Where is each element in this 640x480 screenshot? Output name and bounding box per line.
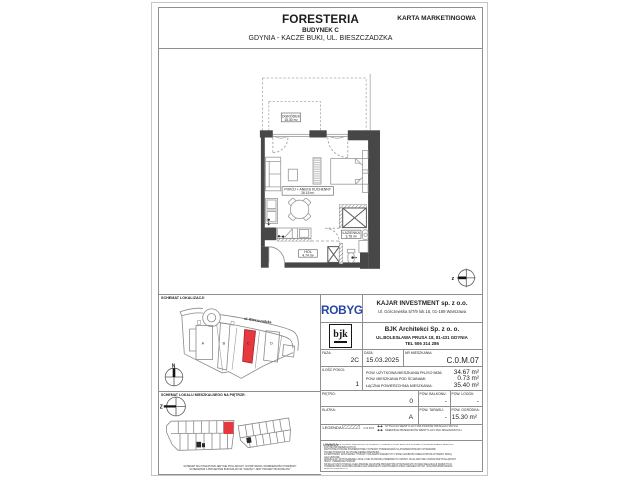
svg-text:D: D xyxy=(270,341,273,346)
svg-text:Z: Z xyxy=(160,405,163,411)
svg-text:A: A xyxy=(202,341,205,346)
svg-text:ul. Bieszczadzka: ul. Bieszczadzka xyxy=(244,317,272,325)
svg-text:C: C xyxy=(247,341,250,346)
svg-text:B: B xyxy=(223,341,226,346)
svg-text:N: N xyxy=(172,363,176,369)
